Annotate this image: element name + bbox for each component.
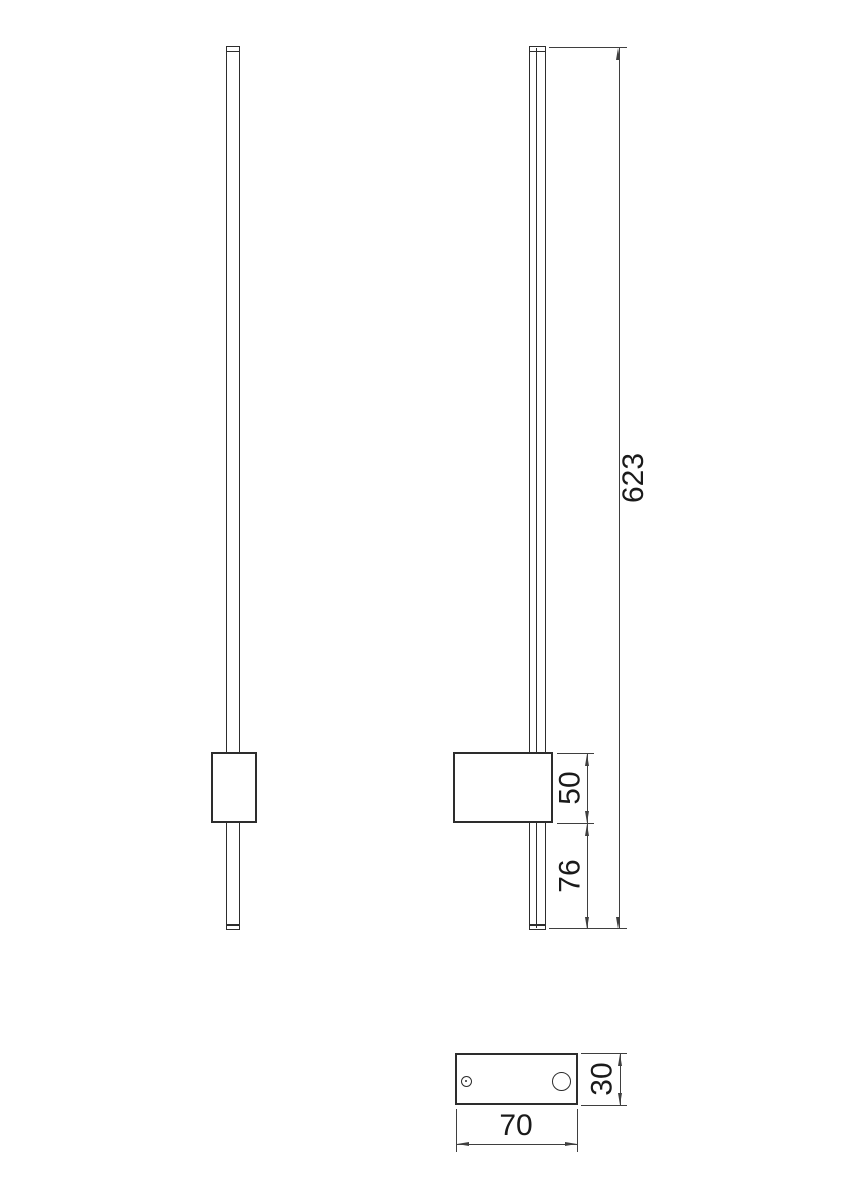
dimension-line-70 (456, 1144, 577, 1145)
arrowhead-down (585, 917, 589, 929)
dimension-label-623: 623 (604, 428, 664, 528)
technical-drawing-canvas: 623 50 76 70 (0, 0, 847, 1200)
arrowhead-up (585, 824, 589, 836)
dimension-label-50: 50 (546, 753, 596, 823)
mounting-hole-icon (552, 1072, 571, 1091)
dimension-label-76: 76 (546, 841, 596, 911)
arrowhead-down (616, 917, 620, 929)
arrowhead-right (565, 1142, 577, 1146)
side-view-mount-housing (453, 752, 553, 823)
dimension-label-30: 30 (578, 1049, 628, 1109)
front-view-mount-housing (211, 752, 257, 823)
front-view-bottom-cap-line (227, 924, 239, 926)
extension-line-top (549, 47, 627, 48)
front-view-top-cap-line (227, 51, 239, 53)
side-view-top-cap-line (530, 51, 545, 53)
arrowhead-left (457, 1142, 469, 1146)
arrowhead-up (616, 48, 620, 60)
dimension-label-70: 70 (486, 1110, 546, 1142)
extension-line-right (577, 1109, 578, 1152)
side-view-bottom-cap-line (530, 924, 545, 926)
